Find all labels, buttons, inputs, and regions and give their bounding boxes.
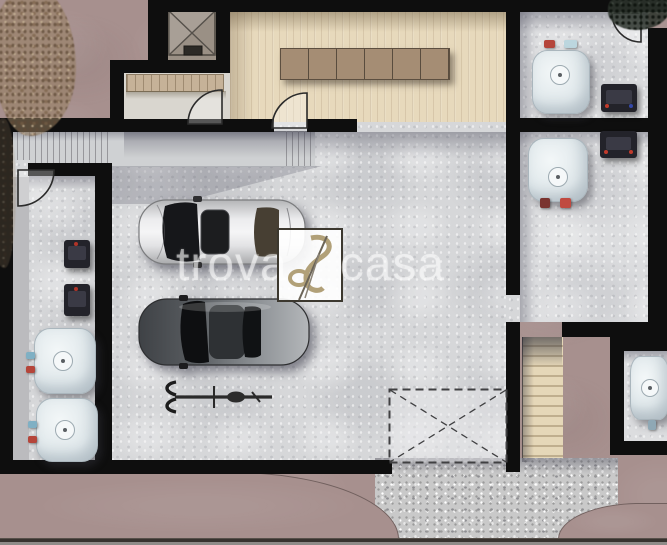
watermark-text-left: trova bbox=[176, 241, 288, 289]
floor-plan-canvas: trova casa bbox=[0, 0, 667, 545]
watermark: trova casa bbox=[176, 228, 445, 302]
watermark-text-right: casa bbox=[340, 241, 445, 289]
door-swing-tech-room bbox=[18, 170, 54, 206]
trovacasa-logo bbox=[277, 228, 343, 302]
door-swing-woodroom bbox=[272, 93, 307, 128]
door-swing-corridor bbox=[188, 90, 222, 124]
